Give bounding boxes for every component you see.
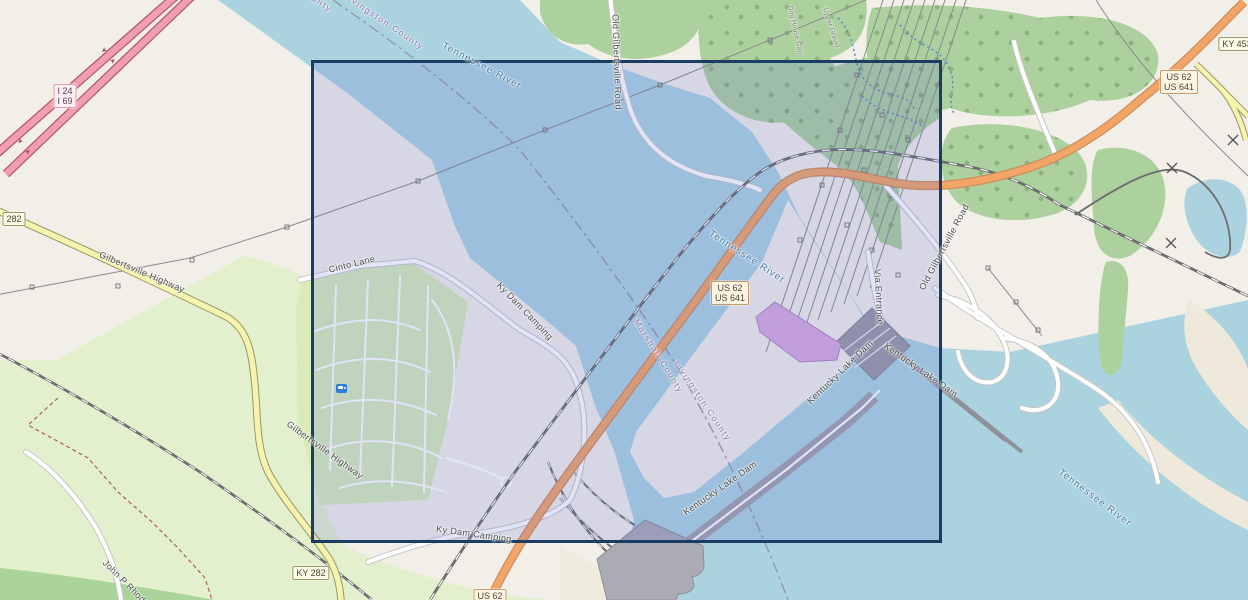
us62-641-shield-mid: US 62US 641 [711, 281, 749, 305]
us62-641-shield-right: US 62US 641 [1160, 70, 1198, 94]
ky282-shield: KY 282 [292, 566, 329, 580]
selection-rectangle[interactable] [311, 60, 942, 543]
ky453-shield: KY 453 [1218, 37, 1248, 51]
campsite-icon [336, 384, 347, 393]
interstate-shield: I 24I 69 [53, 84, 76, 108]
ky282-shield-left: 282 [2, 212, 25, 226]
map-viewport[interactable]: ➤ ➤ ➤ ➤ I 24I 69 282 KY 282 US 62 US 62U… [0, 0, 1248, 600]
us62-shield-bottom: US 62 [473, 589, 506, 600]
